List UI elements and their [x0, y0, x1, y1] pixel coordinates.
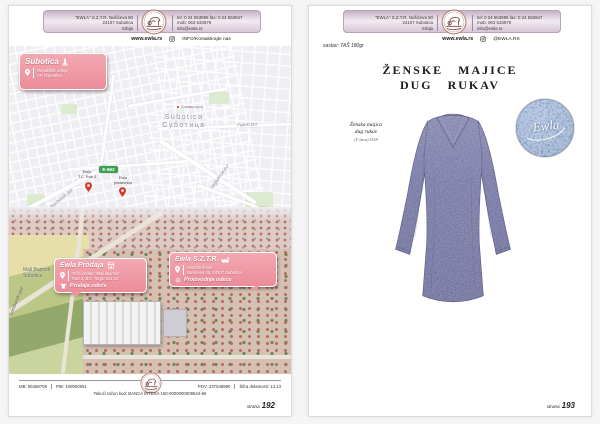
header-bar: "EWLA" S.Z.T.R. Nušićeva 50 24107 Suboti… [343, 10, 561, 33]
region-line: Republika Srbija [37, 68, 68, 73]
clothes-icon [60, 283, 67, 289]
company-line: Srbija [50, 26, 133, 31]
ewla-logo-icon [441, 9, 467, 35]
city-name-cyrillic: Суботица [149, 121, 219, 130]
callout-pointer [71, 292, 81, 302]
gear-icon [175, 277, 181, 283]
photo-road [83, 355, 292, 359]
catalog-spread: "EWLA" S.Z.T.R. Nušićeva 50 24107 Suboti… [0, 0, 600, 424]
company-contact: tel: 0 24 553995 fax: 0 24 553947 mob: 0… [472, 15, 558, 31]
instagram-icon [480, 36, 486, 42]
material-info: sastav: TAŠ 180gr [323, 43, 364, 49]
company-contact: tel: 0 24 553995 fax: 0 24 553947 mob: 0… [172, 15, 258, 31]
map-pin-label: Ewla prodavnica [107, 176, 139, 185]
map-park [209, 92, 229, 104]
social-link[interactable]: INFO/Kontaktirajte nas [182, 37, 231, 42]
company-address: "EWLA" S.Z.T.R. Nušićeva 50 24107 Suboti… [50, 15, 138, 31]
hq-address-line: Nušićeva 50, 24107 Subotica [187, 270, 241, 275]
product-title-line1: ŽENSKE MAJICE [309, 63, 591, 78]
page-num: 193 [562, 401, 575, 410]
factory-icon [221, 256, 229, 263]
poi-marker-icon [177, 106, 179, 108]
page-number: strana192 [247, 395, 275, 413]
page-num: 192 [262, 401, 275, 410]
hq-tag: Proizvodnja odeće [184, 277, 232, 283]
pin-label-line: T.C. Rab 3 [71, 175, 103, 180]
aerial-photo: Mali Bajmok Subotica Somborski put Ewla … [9, 207, 292, 374]
location-pin-icon [25, 69, 30, 76]
store-title: Ewla Prodaja [60, 262, 104, 269]
poi-name: Gradska kuća [181, 105, 203, 109]
city-callout: Subotica Republika Srbija AP Vojvodina [19, 53, 107, 90]
monument-icon [62, 58, 68, 66]
header-links: www.ewla.rs INFO/Kontaktirajte nas [69, 35, 292, 43]
store-callout: Ewla Prodaja Tržni centar "Mali Bajmok" … [54, 258, 147, 293]
divider [234, 384, 235, 389]
map-pin-icon [85, 182, 92, 192]
poi-label: Gradska kuća [177, 105, 203, 109]
location-pin-icon [60, 272, 65, 279]
website-link[interactable]: www.ewla.rs [442, 36, 473, 42]
ewla-logo-icon [141, 9, 167, 35]
region-line: AP Vojvodina [37, 73, 68, 78]
building [163, 309, 187, 337]
social-link[interactable]: @EWLA.RS [493, 37, 519, 42]
area-line: Subotica [23, 273, 50, 279]
location-pin-icon [175, 266, 180, 273]
page-word: strana [547, 404, 560, 409]
activity-code: Šifra delatnosti: 14.13 [239, 384, 281, 389]
shop-icon [107, 262, 115, 269]
hq-callout: Ewla S.Z.T.R. Sedište firme: Nušićeva 50… [169, 252, 277, 287]
map-pin-label: Ewla T.C. Rab 3 [71, 170, 103, 179]
instagram-icon [169, 36, 175, 42]
store-address-line: Tržni centar "Mali Bajmok" [72, 271, 121, 276]
email-link[interactable]: info@ewla.rs [177, 26, 258, 31]
pdv-number: PDV: 237548990 [198, 384, 231, 389]
page-number: strana193 [547, 395, 575, 413]
company-address: "EWLA" S.Z.T.R. Nušićeva 50 24107 Suboti… [350, 15, 438, 31]
header-links: www.ewla.rs @EWLA.RS [369, 35, 592, 43]
area-label: Mali Bajmok Subotica [23, 267, 50, 279]
website-link[interactable]: www.ewla.rs [131, 36, 162, 42]
page-193: "EWLA" S.Z.T.R. Nušićeva 50 24107 Suboti… [308, 5, 592, 417]
pib-number: PIB: 100900551 [56, 384, 87, 389]
store-tag: Prodaja odeće [70, 283, 107, 289]
map-park [61, 104, 77, 114]
store-address-line: Rab 3, B.c. Targo 511 23 [72, 276, 121, 281]
street-label: Palićki put [237, 121, 257, 127]
city-callout-title: Subotica [25, 57, 59, 66]
mb-number: MB: 55468708 [19, 384, 47, 389]
divider [51, 384, 52, 389]
shopping-center-building [83, 301, 161, 345]
company-line: Srbija [350, 26, 433, 31]
pin-label-line: prodavnica [107, 181, 139, 186]
page-192: "EWLA" S.Z.T.R. Nušićeva 50 24107 Suboti… [8, 5, 292, 417]
map-photo-fade [9, 207, 292, 221]
map-pin-icon [119, 187, 126, 197]
header-bar: "EWLA" S.Z.T.R. Nušićeva 50 24107 Suboti… [43, 10, 261, 33]
city-label: Subotica Суботица [149, 112, 219, 130]
page-word: strana [247, 404, 260, 409]
product-photo-shirt [377, 90, 529, 342]
hq-title: Ewla S.Z.T.R. [175, 256, 218, 263]
city-name-latin: Subotica [149, 112, 219, 121]
email-link[interactable]: info@ewla.rs [477, 26, 558, 31]
